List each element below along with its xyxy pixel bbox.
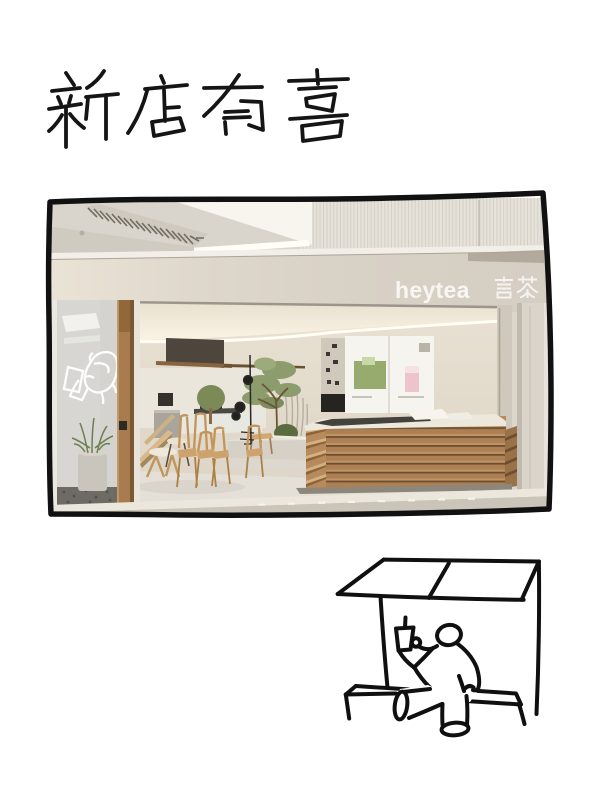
svg-text:heytea: heytea [395,277,470,303]
